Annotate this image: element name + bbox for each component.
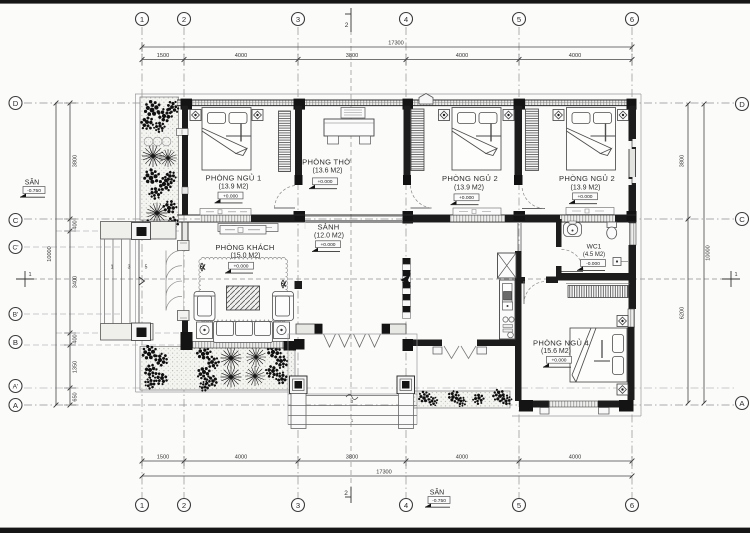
svg-text:400: 400 [73, 334, 79, 343]
svg-text:5: 5 [145, 265, 148, 271]
svg-text:4000: 4000 [569, 53, 581, 59]
svg-text:+0.000: +0.000 [577, 194, 592, 200]
svg-text:B: B [13, 338, 18, 347]
svg-text:+0.000: +0.000 [233, 264, 248, 270]
svg-text:1: 1 [140, 15, 144, 24]
svg-text:PHÒNG KHÁCH: PHÒNG KHÁCH [215, 243, 274, 252]
svg-text:(13.9 M2): (13.9 M2) [219, 183, 249, 190]
svg-text:4000: 4000 [456, 455, 468, 461]
svg-text:6: 6 [630, 15, 634, 24]
svg-text:B': B' [13, 311, 19, 318]
svg-text:SÂN: SÂN [25, 178, 39, 187]
svg-text:PHÒNG NGỦ 2: PHÒNG NGỦ 2 [442, 174, 498, 183]
svg-text:2: 2 [182, 501, 186, 510]
svg-text:(13.6 M2): (13.6 M2) [313, 168, 343, 175]
svg-text:+0.000: +0.000 [223, 193, 238, 199]
svg-text:(15.6 M2): (15.6 M2) [541, 348, 571, 355]
svg-text:6: 6 [630, 501, 634, 510]
svg-text:SẢNH: SẢNH [317, 223, 339, 232]
svg-text:3800: 3800 [346, 455, 358, 461]
svg-text:PHÒNG NGỦ 4: PHÒNG NGỦ 4 [533, 339, 589, 348]
svg-text:+0.000: +0.000 [320, 242, 335, 248]
svg-text:(4.5 M2): (4.5 M2) [583, 252, 605, 258]
svg-text:3800: 3800 [73, 155, 79, 167]
svg-text:(15.0 M2): (15.0 M2) [231, 253, 261, 260]
svg-text:3800: 3800 [680, 155, 686, 167]
svg-text:PHÒNG NGỦ 1: PHÒNG NGỦ 1 [206, 174, 262, 183]
svg-text:5: 5 [517, 501, 521, 510]
svg-text:C': C' [12, 244, 18, 251]
svg-text:3400: 3400 [73, 276, 79, 288]
svg-text:D: D [739, 100, 745, 109]
svg-text:10000: 10000 [47, 246, 53, 262]
svg-text:(12.0 M2): (12.0 M2) [314, 233, 344, 240]
svg-text:3: 3 [128, 265, 131, 271]
svg-text:+0.000: +0.000 [459, 195, 474, 201]
svg-text:(13.9 M2): (13.9 M2) [571, 185, 601, 192]
svg-text:2: 2 [345, 22, 349, 29]
svg-text:1500: 1500 [157, 53, 169, 59]
svg-text:(13.9 M2): (13.9 M2) [454, 185, 484, 192]
svg-text:17300: 17300 [376, 470, 392, 476]
svg-text:-0.750: -0.750 [27, 188, 41, 194]
svg-text:PHÒNG NGỦ 2: PHÒNG NGỦ 2 [559, 174, 615, 183]
svg-text:-0.000: -0.000 [586, 261, 600, 267]
svg-text:1: 1 [140, 501, 144, 510]
svg-text:4000: 4000 [235, 455, 247, 461]
svg-text:2: 2 [182, 15, 186, 24]
svg-text:3800: 3800 [346, 53, 358, 59]
svg-text:17300: 17300 [388, 41, 404, 47]
svg-text:C: C [13, 216, 19, 225]
svg-text:1500: 1500 [157, 455, 169, 461]
svg-text:-0.750: -0.750 [432, 498, 446, 504]
svg-text:D: D [13, 99, 19, 108]
svg-text:A: A [739, 399, 745, 408]
svg-text:10000: 10000 [706, 245, 712, 261]
svg-text:1350: 1350 [73, 361, 79, 373]
svg-text:WC1: WC1 [587, 244, 602, 251]
svg-text:A: A [13, 401, 19, 410]
svg-text:1: 1 [734, 272, 737, 278]
svg-text:4: 4 [404, 15, 409, 24]
svg-text:2: 2 [344, 490, 348, 497]
svg-text:400: 400 [73, 220, 79, 229]
svg-text:5: 5 [517, 15, 521, 24]
svg-text:4000: 4000 [569, 455, 581, 461]
svg-text:3: 3 [296, 15, 300, 24]
svg-text:1: 1 [28, 272, 31, 278]
svg-text:+0.000: +0.000 [551, 358, 566, 364]
svg-text:4000: 4000 [235, 53, 247, 59]
svg-text:6200: 6200 [680, 307, 686, 319]
svg-text:4000: 4000 [456, 53, 468, 59]
svg-text:650: 650 [73, 392, 79, 401]
svg-text:PHÒNG THỜ: PHÒNG THỜ [302, 158, 351, 167]
svg-text:A': A' [13, 383, 19, 390]
svg-text:4: 4 [404, 501, 409, 510]
svg-text:+0.000: +0.000 [317, 179, 332, 185]
svg-text:C: C [739, 215, 745, 224]
svg-text:SÂN: SÂN [430, 488, 444, 497]
svg-text:1: 1 [111, 265, 114, 271]
svg-text:3: 3 [296, 501, 300, 510]
